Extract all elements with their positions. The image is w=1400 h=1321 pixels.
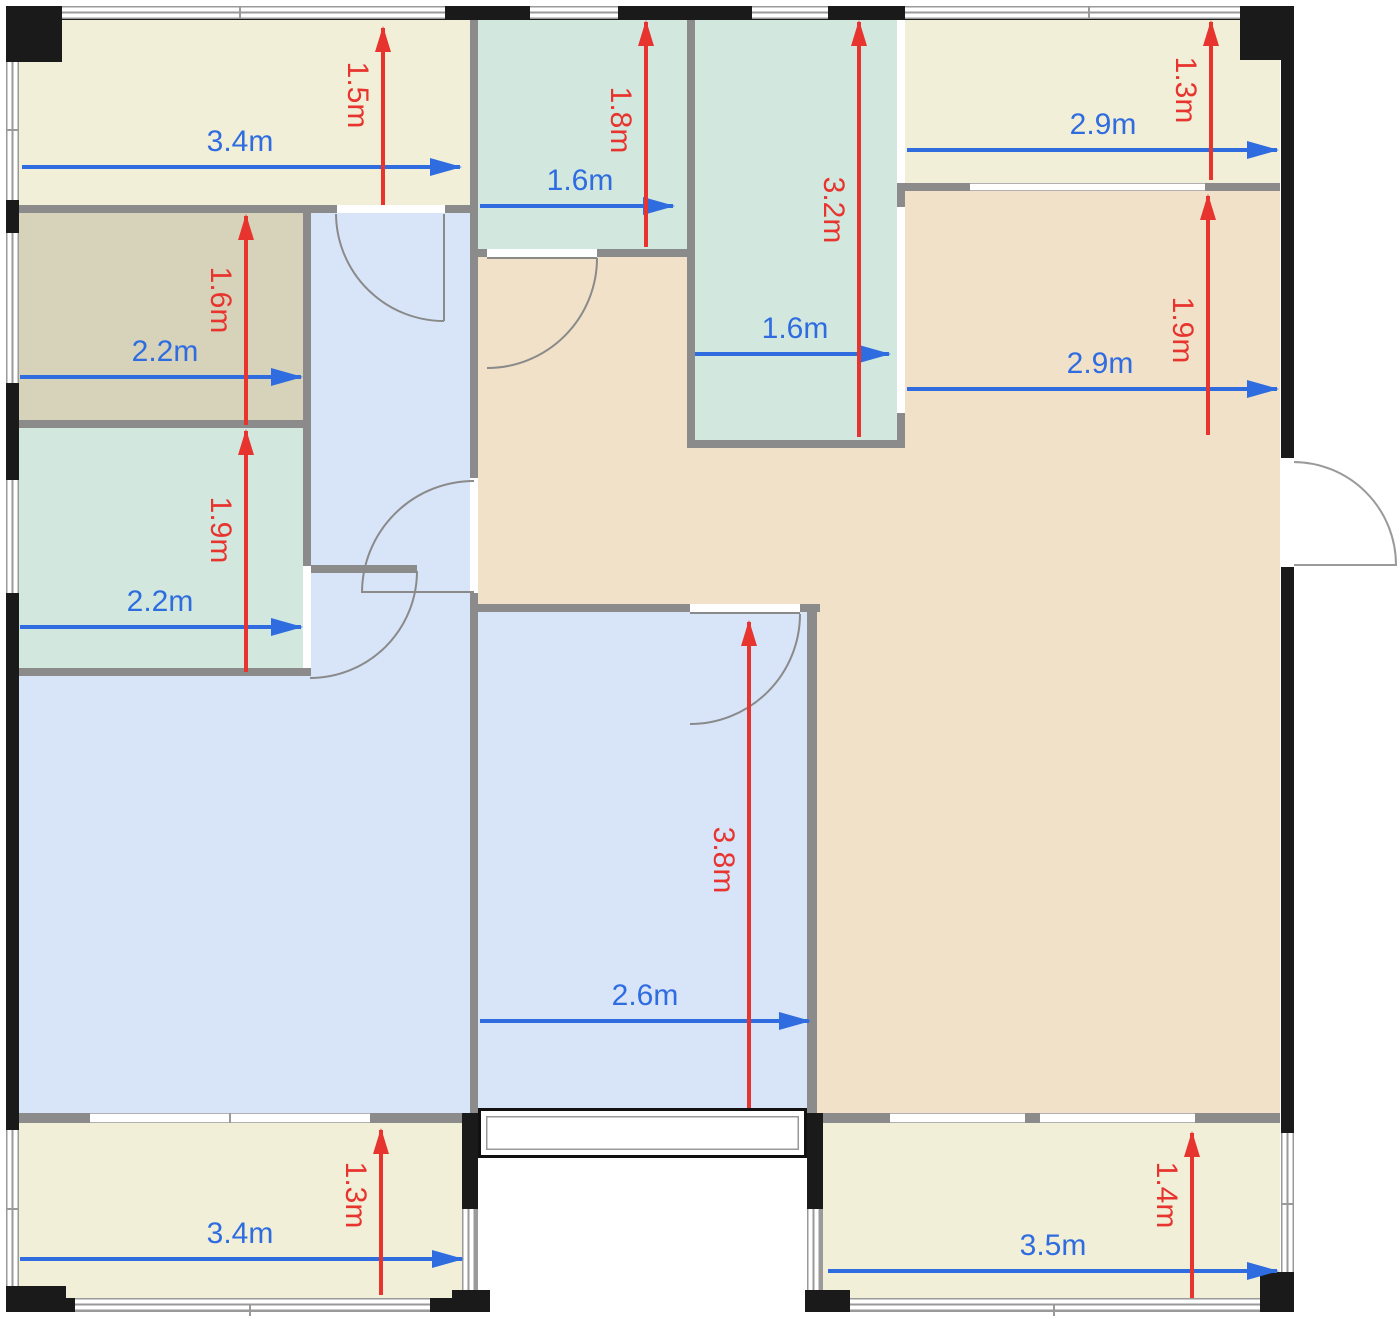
room-bath-left xyxy=(15,428,303,668)
wall-bath-middle-bottom xyxy=(687,440,905,448)
dim-label: 3.4m xyxy=(207,1219,274,1249)
dim-v-balcony-bottom-left: 1.3m xyxy=(379,1130,383,1295)
wall-corner-bottom-left xyxy=(6,1286,66,1312)
window-divider-icon xyxy=(7,1208,19,1210)
dim-label: 1.8m xyxy=(605,87,635,154)
door-opening-bath-left xyxy=(303,566,311,668)
dim-h-balcony-top-right: 2.9m xyxy=(907,148,1277,152)
window-living-bottom-2 xyxy=(1040,1113,1195,1123)
door-opening-bath-top xyxy=(487,249,597,257)
window-living-bottom-1 xyxy=(890,1113,1025,1123)
dim-label: 1.9m xyxy=(1167,297,1197,364)
wall-exterior-left xyxy=(6,6,19,1312)
dim-label: 2.6m xyxy=(612,981,679,1011)
dim-v-balcony-bottom-right: 1.4m xyxy=(1190,1133,1194,1298)
dim-h-storage: 2.2m xyxy=(20,375,301,379)
dim-label: 3.4m xyxy=(207,127,274,157)
dim-label: 1.6m xyxy=(205,267,235,334)
dim-label: 3.5m xyxy=(1020,1231,1087,1261)
window-balcony-tl-top xyxy=(60,6,445,19)
dim-label: 3.8m xyxy=(708,827,738,894)
window-balcony-bl-left xyxy=(6,1130,19,1290)
window-notch-left xyxy=(462,1209,478,1298)
door-opening-bath-middle xyxy=(897,207,905,413)
dim-label: 2.2m xyxy=(132,337,199,367)
window-bath-middle-top xyxy=(752,6,828,19)
bay-window-bedroom-middle xyxy=(478,1108,807,1158)
door-entry-main xyxy=(1293,462,1396,565)
door-opening-bedroom-middle xyxy=(690,604,800,612)
window-balcony-bl-bottom xyxy=(75,1298,430,1312)
dim-h-bath-left: 2.2m xyxy=(20,625,301,629)
dim-h-bedroom-middle: 2.6m xyxy=(480,1019,809,1023)
window-notch-right xyxy=(807,1209,823,1298)
wall-corner-top-left xyxy=(6,6,62,62)
dim-label: 1.5m xyxy=(342,62,372,129)
room-hallway xyxy=(311,205,470,676)
dim-h-living: 2.9m xyxy=(907,387,1277,391)
window-divider-icon xyxy=(239,7,241,19)
window-divider-icon xyxy=(1088,7,1090,19)
room-storage xyxy=(15,213,303,420)
dim-h-balcony-bottom-left: 3.4m xyxy=(20,1257,462,1261)
window-divider-icon xyxy=(229,1113,231,1123)
dim-label: 1.3m xyxy=(340,1162,370,1229)
dim-label: 1.4m xyxy=(1151,1162,1181,1229)
wall-bath-divider xyxy=(687,8,695,448)
window-balcony-br-bottom xyxy=(850,1298,1265,1312)
room-balcony-bottom-right xyxy=(823,1123,1280,1299)
room-bedroom-middle xyxy=(478,612,807,1113)
window-divider-icon xyxy=(1053,1304,1055,1316)
wall-hall-stub xyxy=(311,565,417,573)
room-balcony-bottom-left xyxy=(15,1123,462,1299)
dim-label: 3.2m xyxy=(818,177,848,244)
wall-corner-top-right xyxy=(1240,6,1294,60)
dim-v-balcony-top-right: 1.3m xyxy=(1209,22,1213,180)
wall-bedroom-middle-right xyxy=(807,612,817,1113)
window-bath-left-left xyxy=(6,480,19,593)
door-opening-entry-main xyxy=(1281,458,1294,567)
dim-label: 1.6m xyxy=(547,166,614,196)
window-bath-top-top xyxy=(530,6,618,19)
dim-v-bedroom-middle: 3.8m xyxy=(747,622,751,1108)
window-divider-icon xyxy=(7,129,19,131)
wall-corner-notch-left xyxy=(452,1290,490,1312)
dim-label: 1.9m xyxy=(205,497,235,564)
window-living-top xyxy=(970,183,1205,191)
door-opening-hall-right xyxy=(470,478,478,593)
dim-label: 2.9m xyxy=(1070,110,1137,140)
dim-label: 1.3m xyxy=(1170,57,1200,124)
window-divider-icon xyxy=(249,1304,251,1316)
dim-v-balcony-top-left: 1.5m xyxy=(381,28,385,205)
dim-v-bath-top: 1.8m xyxy=(644,22,648,247)
dim-h-balcony-top-left: 3.4m xyxy=(22,165,460,169)
wall-notch-left xyxy=(462,1113,478,1209)
room-bath-middle xyxy=(695,8,897,440)
door-opening-balcony-tl xyxy=(337,205,445,213)
dim-label: 1.6m xyxy=(762,314,829,344)
window-divider-icon xyxy=(1282,1203,1294,1205)
window-balcony-tr-top xyxy=(905,6,1263,19)
wall-bath-left-bottom xyxy=(15,668,311,676)
dim-v-storage: 1.6m xyxy=(244,216,248,425)
dim-v-bath-middle: 3.2m xyxy=(857,22,861,437)
window-storage-left xyxy=(6,233,19,383)
dim-v-bath-left: 1.9m xyxy=(244,431,248,672)
wall-corner-notch-right xyxy=(805,1290,850,1312)
room-balcony-top-right xyxy=(905,8,1280,183)
dim-label: 2.9m xyxy=(1067,349,1134,379)
wall-storage-bottom xyxy=(15,420,303,428)
dim-label: 2.2m xyxy=(127,587,194,617)
dim-h-balcony-bottom-right: 3.5m xyxy=(828,1269,1277,1273)
wall-exterior-right xyxy=(1281,6,1294,1312)
wall-notch-right xyxy=(807,1113,823,1209)
room-balcony-top-left xyxy=(15,8,470,205)
floor-plan-canvas: 3.4m 2.2m 2.2m 1.6m 1.6m 2.9m 2.9m 2.6m … xyxy=(0,0,1400,1321)
room-bedroom-left xyxy=(15,668,470,1113)
dim-v-living-top: 1.9m xyxy=(1206,196,1210,435)
window-balcony-tl-left xyxy=(6,62,19,200)
